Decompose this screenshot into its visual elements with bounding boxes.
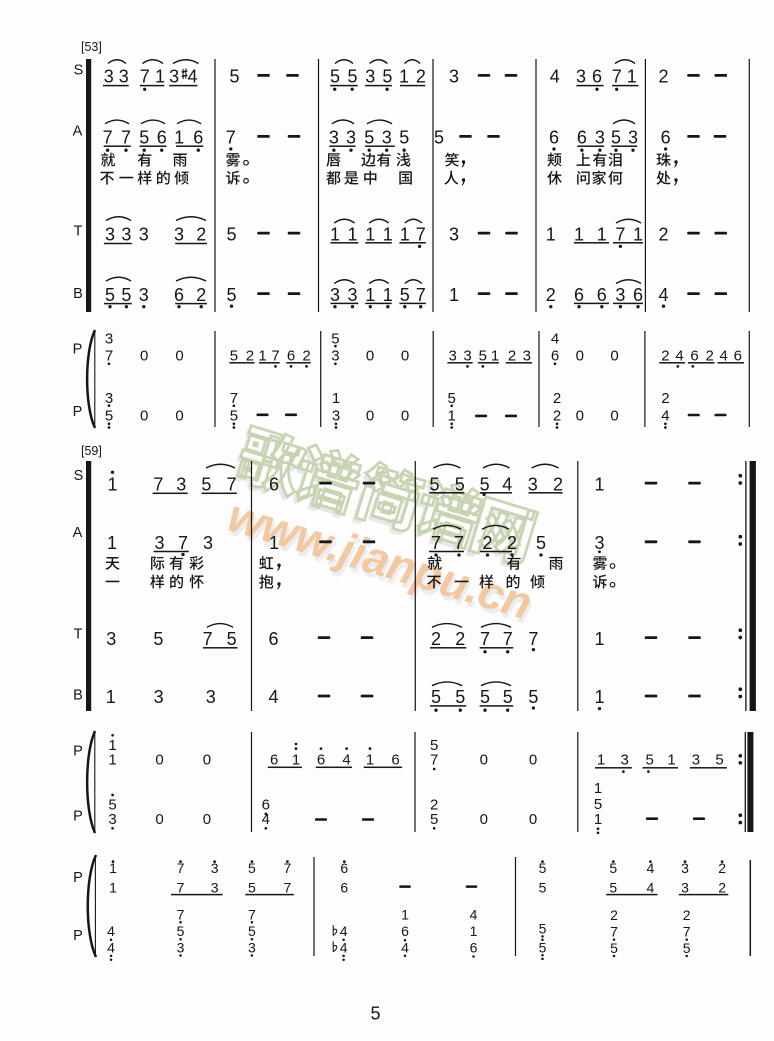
- svg-text:4: 4: [647, 879, 655, 895]
- svg-text:1: 1: [106, 687, 116, 707]
- svg-text:3: 3: [154, 533, 164, 553]
- svg-text:4: 4: [340, 939, 348, 955]
- svg-text:7: 7: [178, 533, 188, 553]
- svg-text:1: 1: [449, 285, 459, 305]
- svg-text:1: 1: [470, 923, 478, 939]
- svg-text:7: 7: [121, 128, 131, 148]
- svg-text:5: 5: [431, 687, 441, 707]
- svg-text:3: 3: [121, 224, 131, 244]
- svg-text:6: 6: [157, 128, 167, 148]
- svg-text:7: 7: [431, 533, 441, 553]
- svg-text:5: 5: [226, 224, 236, 244]
- svg-text:5: 5: [611, 128, 621, 148]
- svg-text:0: 0: [155, 751, 163, 768]
- svg-text:5: 5: [230, 408, 238, 425]
- svg-text:4: 4: [551, 331, 559, 348]
- svg-text:1: 1: [292, 751, 300, 768]
- svg-text:3: 3: [248, 939, 256, 955]
- svg-text:P: P: [73, 928, 83, 944]
- svg-text:7: 7: [226, 128, 236, 148]
- svg-text:7: 7: [430, 751, 438, 768]
- svg-text:A: A: [73, 124, 83, 140]
- svg-text:2: 2: [196, 224, 206, 244]
- svg-text:3: 3: [331, 348, 339, 365]
- svg-text:4: 4: [550, 67, 560, 87]
- svg-text:3: 3: [628, 128, 638, 148]
- svg-text:6: 6: [269, 474, 279, 494]
- svg-text:P: P: [73, 342, 83, 358]
- svg-text:2: 2: [718, 879, 726, 895]
- svg-text:6: 6: [391, 751, 399, 768]
- svg-text:3: 3: [347, 285, 357, 305]
- svg-text:P: P: [73, 870, 83, 886]
- svg-text:2: 2: [482, 533, 492, 553]
- svg-text:P: P: [73, 744, 83, 760]
- svg-text:5: 5: [229, 67, 239, 87]
- svg-text:2: 2: [658, 67, 668, 87]
- svg-text:6: 6: [592, 67, 602, 87]
- svg-text:T: T: [74, 224, 83, 240]
- svg-text:1: 1: [594, 780, 602, 797]
- svg-text:5: 5: [177, 923, 185, 939]
- svg-text:1: 1: [401, 907, 409, 923]
- svg-text:3: 3: [104, 67, 114, 87]
- svg-text:3: 3: [176, 474, 186, 494]
- svg-text:2: 2: [546, 285, 556, 305]
- svg-text:0: 0: [610, 408, 618, 425]
- svg-text:3: 3: [177, 939, 185, 955]
- svg-text:7: 7: [105, 348, 113, 365]
- svg-text:0: 0: [175, 408, 183, 425]
- svg-text:5: 5: [455, 687, 465, 707]
- svg-text:5: 5: [528, 687, 538, 707]
- svg-text:3: 3: [528, 474, 538, 494]
- svg-text:5: 5: [430, 811, 438, 828]
- svg-text:3: 3: [206, 687, 216, 707]
- svg-text:2: 2: [196, 285, 206, 305]
- svg-text:7: 7: [683, 924, 691, 940]
- svg-text:7: 7: [503, 629, 513, 649]
- svg-text:4: 4: [187, 67, 197, 87]
- svg-text:4: 4: [502, 474, 512, 494]
- svg-text:6: 6: [597, 285, 607, 305]
- svg-text:7: 7: [203, 629, 213, 649]
- svg-text:5: 5: [105, 285, 115, 305]
- svg-text:6: 6: [317, 751, 325, 768]
- svg-text:1: 1: [594, 687, 604, 707]
- svg-text:1: 1: [448, 408, 456, 425]
- svg-text:2: 2: [553, 390, 561, 407]
- svg-text:5: 5: [226, 285, 236, 305]
- svg-text:0: 0: [576, 348, 584, 365]
- svg-text:2: 2: [507, 533, 517, 553]
- svg-text:0: 0: [366, 408, 374, 425]
- svg-text:4: 4: [268, 687, 278, 707]
- svg-text:5: 5: [715, 751, 723, 768]
- svg-text:1: 1: [383, 224, 393, 244]
- svg-text:7: 7: [248, 907, 256, 923]
- svg-text:0: 0: [175, 348, 183, 365]
- svg-text:6: 6: [574, 285, 584, 305]
- svg-text:B: B: [73, 286, 83, 302]
- svg-text:7: 7: [480, 629, 490, 649]
- svg-text:5: 5: [683, 940, 691, 956]
- svg-text:0: 0: [203, 751, 211, 768]
- svg-text:2: 2: [431, 629, 441, 649]
- svg-text:6: 6: [340, 879, 348, 895]
- svg-text:6: 6: [551, 348, 559, 365]
- svg-text:5: 5: [364, 128, 374, 148]
- svg-text:7: 7: [454, 533, 464, 553]
- svg-text:5: 5: [370, 1004, 380, 1024]
- svg-text:3: 3: [449, 224, 459, 244]
- svg-text:3: 3: [174, 224, 184, 244]
- svg-text:5: 5: [248, 879, 256, 895]
- svg-text:7: 7: [153, 474, 163, 494]
- svg-text:1: 1: [332, 390, 340, 407]
- svg-text:1: 1: [108, 751, 116, 768]
- svg-text:1: 1: [594, 474, 604, 494]
- svg-text:0: 0: [401, 348, 409, 365]
- svg-text:0: 0: [140, 348, 148, 365]
- svg-text:3: 3: [105, 390, 113, 407]
- svg-text:5: 5: [480, 687, 490, 707]
- svg-text:3: 3: [119, 67, 129, 87]
- svg-text:1: 1: [546, 224, 556, 244]
- svg-text:S: S: [74, 468, 84, 484]
- svg-text:5: 5: [503, 687, 513, 707]
- svg-text:1: 1: [365, 224, 375, 244]
- svg-text:2: 2: [455, 629, 465, 649]
- svg-text:1: 1: [107, 474, 117, 494]
- svg-text:4: 4: [342, 751, 350, 768]
- svg-text:1: 1: [627, 67, 637, 87]
- svg-text:1: 1: [594, 811, 602, 828]
- svg-text:2: 2: [610, 907, 618, 923]
- svg-text:3: 3: [169, 67, 179, 87]
- svg-text:5: 5: [429, 474, 439, 494]
- svg-text:2: 2: [683, 907, 691, 923]
- svg-text:2: 2: [416, 67, 426, 87]
- svg-text:3: 3: [346, 128, 356, 148]
- svg-text:3: 3: [105, 331, 113, 348]
- svg-text:7: 7: [226, 474, 236, 494]
- svg-text:1: 1: [597, 751, 605, 768]
- svg-text:B: B: [73, 688, 83, 704]
- svg-text:1: 1: [174, 128, 184, 148]
- svg-text:5: 5: [480, 474, 490, 494]
- svg-text:0: 0: [140, 408, 148, 425]
- svg-text:5: 5: [434, 128, 444, 148]
- svg-text:3: 3: [365, 67, 375, 87]
- svg-text:5: 5: [347, 67, 357, 87]
- svg-text:5: 5: [539, 879, 547, 895]
- svg-text:1: 1: [366, 751, 374, 768]
- svg-text:2: 2: [553, 408, 561, 425]
- svg-text:5: 5: [121, 285, 131, 305]
- svg-text:7: 7: [230, 390, 238, 407]
- svg-text:5: 5: [139, 128, 149, 148]
- svg-text:5: 5: [248, 923, 256, 939]
- svg-text:7: 7: [177, 879, 185, 895]
- svg-text:3: 3: [154, 687, 164, 707]
- svg-text:2: 2: [658, 224, 668, 244]
- svg-text:4: 4: [401, 939, 409, 955]
- svg-text:5: 5: [609, 879, 617, 895]
- svg-text:6: 6: [193, 128, 203, 148]
- svg-text:0: 0: [480, 751, 488, 768]
- svg-text:6: 6: [661, 128, 671, 148]
- svg-text:5: 5: [539, 939, 547, 955]
- svg-text:0: 0: [401, 408, 409, 425]
- svg-text:1: 1: [269, 533, 279, 553]
- svg-text:3: 3: [105, 224, 115, 244]
- svg-text:5: 5: [610, 940, 618, 956]
- svg-text:5: 5: [536, 533, 546, 553]
- svg-text:1: 1: [633, 224, 643, 244]
- svg-text:1: 1: [365, 285, 375, 305]
- svg-text:7: 7: [610, 924, 618, 940]
- svg-text:3: 3: [329, 128, 339, 148]
- svg-text:0: 0: [480, 811, 488, 828]
- svg-text:7: 7: [528, 629, 538, 649]
- svg-text:0: 0: [576, 408, 584, 425]
- svg-text:6: 6: [633, 285, 643, 305]
- svg-text:4: 4: [470, 907, 478, 923]
- svg-text:3: 3: [576, 67, 586, 87]
- svg-text:6: 6: [401, 923, 409, 939]
- svg-text:T: T: [74, 627, 83, 643]
- svg-text:3: 3: [203, 533, 213, 553]
- svg-text:1: 1: [107, 533, 117, 553]
- svg-text:3: 3: [332, 408, 340, 425]
- svg-text:1: 1: [574, 224, 584, 244]
- svg-text:0: 0: [203, 811, 211, 828]
- svg-text:2: 2: [661, 390, 669, 407]
- svg-text:5: 5: [448, 390, 456, 407]
- svg-text:[59]: [59]: [81, 444, 102, 458]
- svg-text:4: 4: [107, 923, 115, 939]
- svg-text:4: 4: [340, 923, 348, 939]
- svg-text:1: 1: [667, 751, 675, 768]
- svg-text:5: 5: [105, 408, 113, 425]
- svg-text:7: 7: [416, 285, 426, 305]
- svg-text:3: 3: [615, 285, 625, 305]
- svg-text:4: 4: [107, 939, 115, 955]
- svg-text:7: 7: [140, 67, 150, 87]
- svg-text:0: 0: [155, 811, 163, 828]
- svg-text:7: 7: [284, 879, 292, 895]
- svg-text:3: 3: [595, 128, 605, 148]
- svg-text:3: 3: [211, 879, 219, 895]
- svg-text:3: 3: [139, 224, 149, 244]
- svg-text:0: 0: [529, 751, 537, 768]
- svg-text:5: 5: [382, 67, 392, 87]
- svg-text:S: S: [74, 63, 84, 79]
- svg-text:5: 5: [539, 921, 547, 937]
- svg-text:P: P: [73, 809, 83, 825]
- svg-text:3: 3: [108, 811, 116, 828]
- svg-text:3: 3: [621, 751, 629, 768]
- svg-text:A: A: [73, 525, 83, 541]
- svg-text:1: 1: [594, 629, 604, 649]
- svg-text:3: 3: [330, 285, 340, 305]
- svg-text:6: 6: [549, 128, 559, 148]
- svg-text:5: 5: [201, 474, 211, 494]
- svg-text:5: 5: [153, 629, 163, 649]
- svg-text:5: 5: [399, 128, 409, 148]
- svg-text:3: 3: [449, 67, 459, 87]
- svg-text:7: 7: [416, 224, 426, 244]
- svg-text:4: 4: [658, 285, 668, 305]
- svg-text:5: 5: [330, 67, 340, 87]
- svg-text:5: 5: [646, 751, 654, 768]
- svg-text:6: 6: [174, 285, 184, 305]
- svg-text:5: 5: [400, 285, 410, 305]
- svg-text:5: 5: [455, 474, 465, 494]
- svg-text:7: 7: [177, 907, 185, 923]
- svg-text:3: 3: [139, 285, 149, 305]
- svg-text:5: 5: [227, 629, 237, 649]
- svg-text:1: 1: [597, 224, 607, 244]
- svg-text:6: 6: [270, 751, 278, 768]
- svg-text:0: 0: [529, 811, 537, 828]
- svg-text:1: 1: [347, 224, 357, 244]
- svg-text:0: 0: [366, 348, 374, 365]
- svg-text:3: 3: [382, 128, 392, 148]
- svg-text:1: 1: [330, 224, 340, 244]
- svg-text:3: 3: [681, 879, 689, 895]
- svg-text:6: 6: [577, 128, 587, 148]
- svg-text:2: 2: [553, 474, 563, 494]
- svg-text:[53]: [53]: [81, 40, 102, 54]
- svg-text:1: 1: [155, 67, 165, 87]
- svg-text:1: 1: [399, 67, 409, 87]
- svg-text:P: P: [73, 404, 83, 420]
- svg-text:1: 1: [109, 879, 117, 895]
- svg-text:7: 7: [615, 224, 625, 244]
- svg-text:1: 1: [383, 285, 393, 305]
- svg-text:4: 4: [262, 811, 270, 828]
- svg-text:1: 1: [400, 224, 410, 244]
- svg-text:4: 4: [661, 408, 669, 425]
- svg-text:3: 3: [594, 533, 604, 553]
- svg-text:6: 6: [470, 939, 478, 955]
- svg-text:3: 3: [692, 751, 700, 768]
- svg-text:7: 7: [612, 67, 622, 87]
- svg-text:0: 0: [610, 348, 618, 365]
- svg-text:6: 6: [268, 629, 278, 649]
- svg-text:3: 3: [106, 629, 116, 649]
- svg-text:7: 7: [103, 128, 113, 148]
